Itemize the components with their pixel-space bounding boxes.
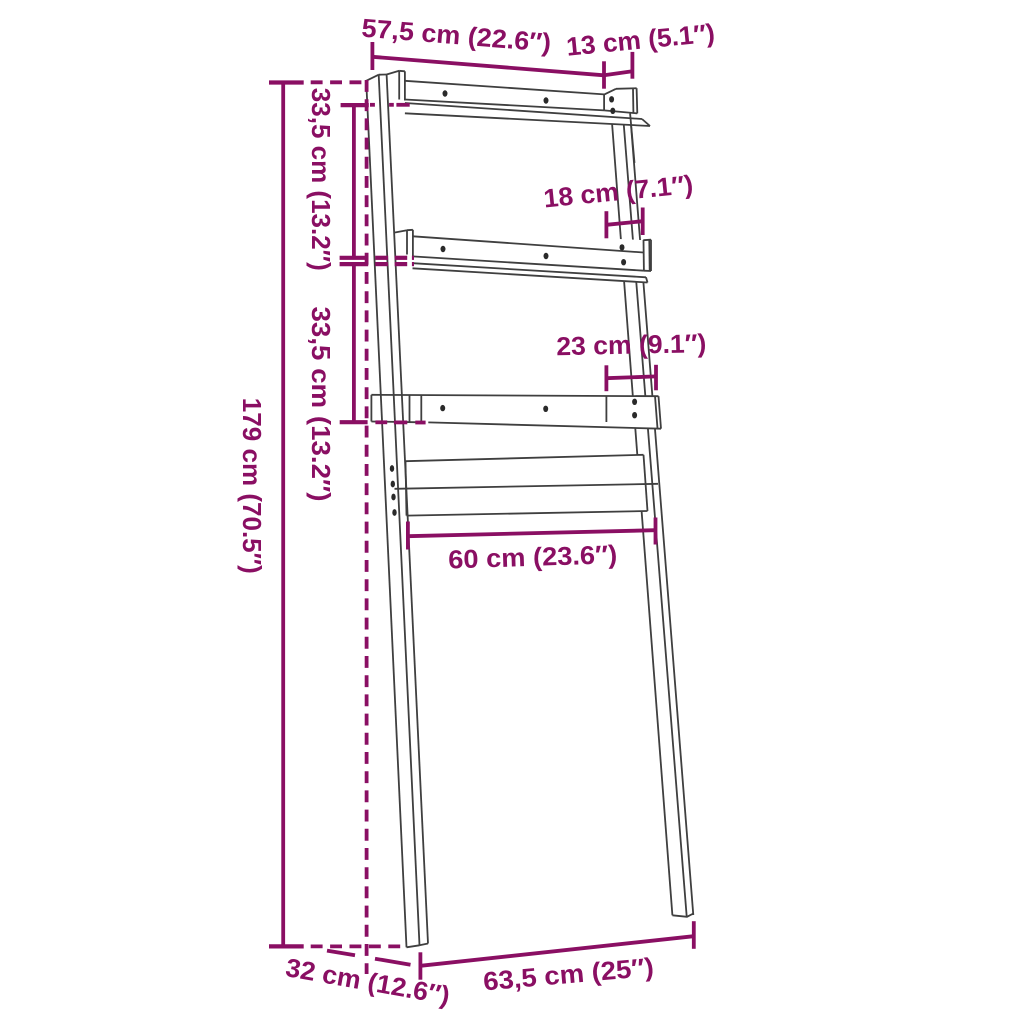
- svg-text:33,5 cm (13.2″): 33,5 cm (13.2″): [306, 88, 336, 271]
- svg-text:33,5 cm (13.2″): 33,5 cm (13.2″): [306, 307, 336, 502]
- svg-text:23 cm (9.1″): 23 cm (9.1″): [556, 328, 707, 361]
- svg-text:179 cm (70.5″): 179 cm (70.5″): [237, 398, 267, 574]
- svg-text:60 cm (23.6″): 60 cm (23.6″): [448, 539, 618, 574]
